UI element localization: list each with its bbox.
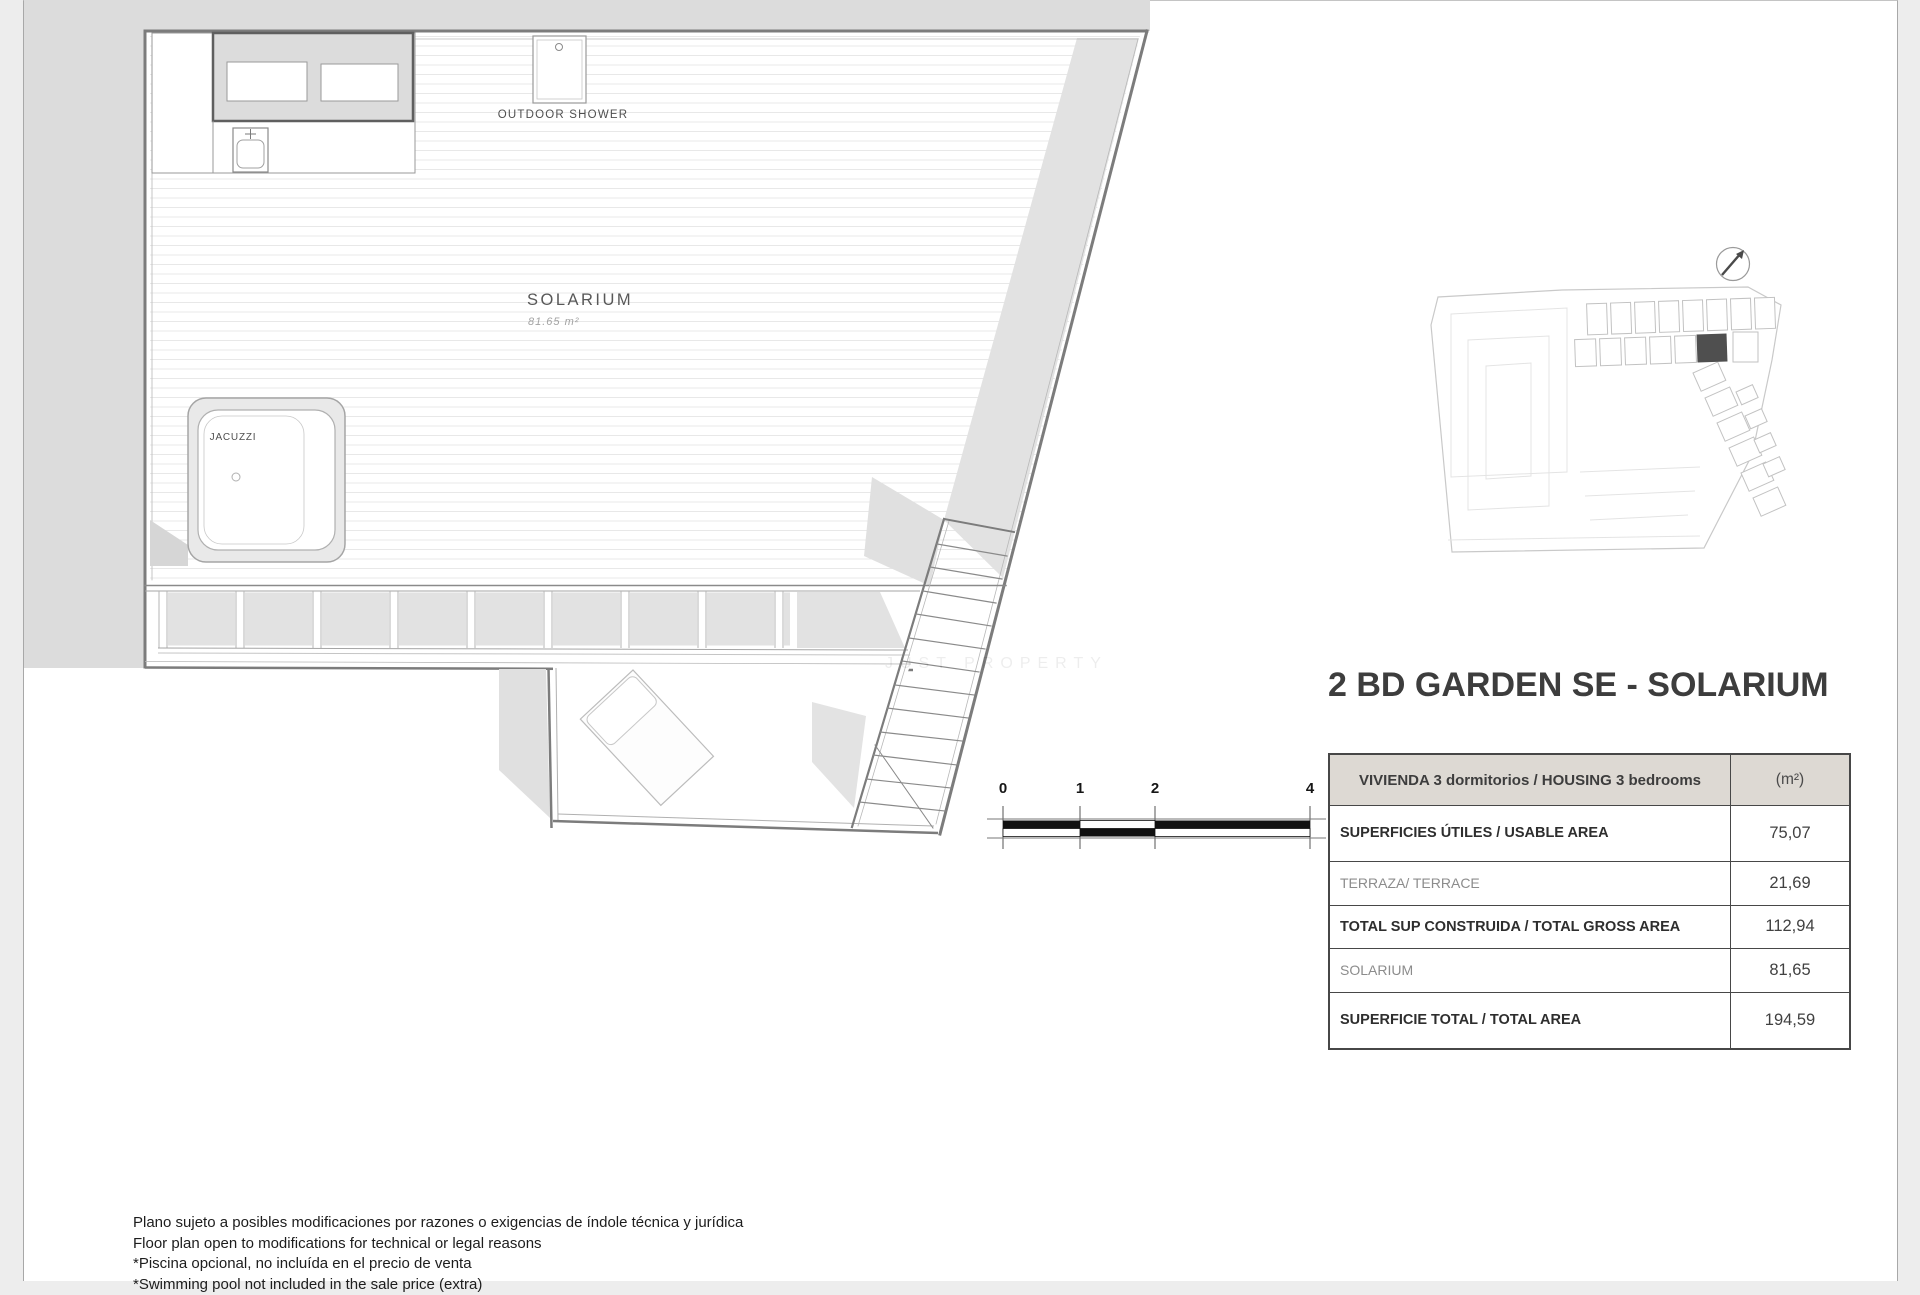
scale-label-0: 0 — [988, 780, 1018, 797]
ac-units — [213, 33, 413, 121]
disclaimer-line: *Piscina opcional, no incluída en el pre… — [133, 1254, 743, 1275]
row-label: SUPERFICIE TOTAL / TOTAL AREA — [1330, 993, 1730, 1048]
disclaimer-line: Floor plan open to modifications for tec… — [133, 1234, 743, 1255]
row-value: 21,69 — [1730, 862, 1849, 906]
table-row: SUPERFICIES ÚTILES / USABLE AREA 75,07 — [1330, 805, 1849, 861]
outdoor-shower-label: OUTDOOR SHOWER — [480, 109, 646, 121]
utility-room — [152, 33, 415, 173]
table-row: SUPERFICIE TOTAL / TOTAL AREA 194,59 — [1330, 992, 1849, 1048]
row-value: 194,59 — [1730, 993, 1849, 1048]
site-plan-highlighted-unit — [1697, 333, 1728, 362]
disclaimer-line: *Swimming pool not included in the sale … — [133, 1275, 743, 1295]
row-label: SUPERFICIES ÚTILES / USABLE AREA — [1330, 806, 1730, 861]
row-value: 81,65 — [1730, 949, 1849, 993]
table-header-unit: (m²) — [1730, 755, 1849, 805]
site-minimap — [1431, 248, 1786, 553]
scale-bar — [987, 806, 1326, 849]
row-label: SOLARIUM — [1330, 949, 1730, 993]
page-title: 2 BD GARDEN SE - SOLARIUM — [1328, 666, 1829, 705]
table-row: SOLARIUM 81,65 — [1330, 948, 1849, 993]
disclaimer-text: Plano sujeto a posibles modificaciones p… — [133, 1213, 743, 1295]
lower-terrace — [499, 666, 938, 833]
row-value: 75,07 — [1730, 806, 1849, 861]
sink — [233, 128, 268, 172]
scale-label-1: 1 — [1065, 780, 1095, 797]
floor-plan-drawing — [0, 0, 1920, 1280]
jacuzzi-label: JACUZZI — [193, 432, 273, 443]
solarium-area-label: 81.65 m² — [528, 316, 579, 328]
table-header-label: VIVIENDA 3 dormitorios / HOUSING 3 bedro… — [1330, 755, 1730, 805]
watermark: JUST PROPERTY — [885, 655, 1108, 673]
table-row: TOTAL SUP CONSTRUIDA / TOTAL GROSS AREA … — [1330, 905, 1849, 948]
pergola-slats — [145, 591, 920, 670]
row-label: TOTAL SUP CONSTRUIDA / TOTAL GROSS AREA — [1330, 906, 1730, 948]
row-label: TERRAZA/ TERRACE — [1330, 862, 1730, 906]
floorplan-page: OUTDOOR SHOWER SOLARIUM 81.65 m² JACUZZI… — [0, 0, 1920, 1280]
north-compass-icon — [1717, 248, 1750, 281]
scale-label-2: 2 — [1140, 780, 1170, 797]
outdoor-shower — [533, 36, 586, 103]
table-row: TERRAZA/ TERRACE 21,69 — [1330, 861, 1849, 906]
area-table-header: VIVIENDA 3 dormitorios / HOUSING 3 bedro… — [1330, 755, 1849, 805]
scale-label-4: 4 — [1295, 780, 1325, 797]
solarium-label: SOLARIUM — [527, 291, 633, 310]
row-value: 112,94 — [1730, 906, 1849, 948]
disclaimer-line: Plano sujeto a posibles modificaciones p… — [133, 1213, 743, 1234]
area-table: VIVIENDA 3 dormitorios / HOUSING 3 bedro… — [1328, 753, 1851, 1050]
